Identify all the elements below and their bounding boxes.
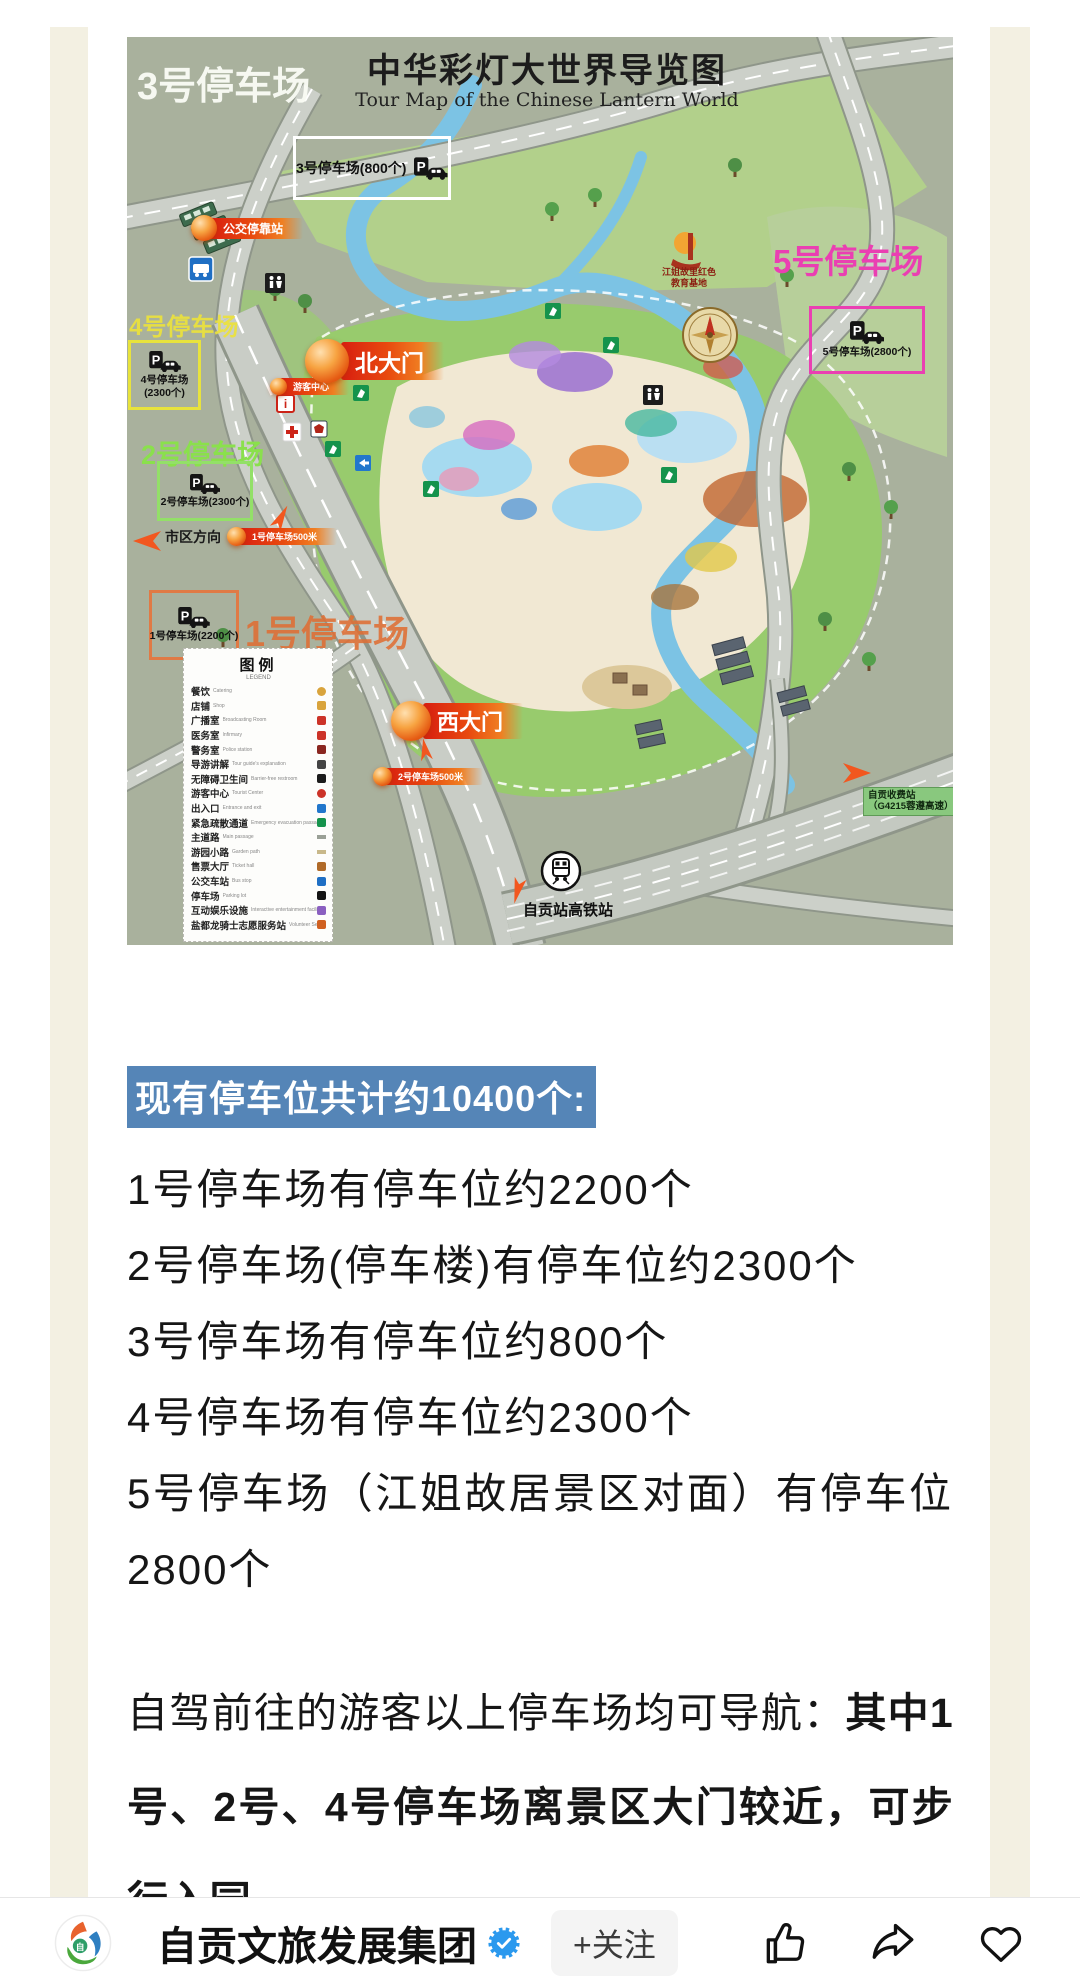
legend-subtitle: LEGEND xyxy=(191,675,326,681)
legend-icon-main-road xyxy=(317,835,326,839)
parking-list: 1号停车场有停车位约2200个 2号停车场(停车楼)有停车位约2300个 3号停… xyxy=(127,1152,953,1608)
legend-title: 图例 xyxy=(191,654,326,675)
legend-row: 导游讲解Tour guide's explanation xyxy=(191,757,326,772)
map-legend: 图例 LEGEND 餐饮Catering 店铺Shop 广播室Broadcast… xyxy=(183,648,333,942)
legend-icon-entertainment xyxy=(317,906,326,915)
legend-row: 游客中心Tourist Center xyxy=(191,786,326,801)
avatar[interactable]: 自 xyxy=(54,1914,112,1972)
legend-row: 主道路Main passage xyxy=(191,830,326,845)
train-station-label: 自贡站高铁站 xyxy=(523,899,613,920)
parking-box-3-label: 3号停车场(800个) xyxy=(296,160,406,176)
legend-icon-entrance xyxy=(317,804,326,813)
marker-p1-distance: 1号停车场500米 xyxy=(227,527,337,546)
train-station-icon xyxy=(542,852,580,890)
legend-row: 无障碍卫生间Barrier-free restroom xyxy=(191,772,326,787)
map-title: 中华彩灯大世界导览图 xyxy=(297,43,797,92)
zone-label-3: 3号停车场 xyxy=(137,55,310,110)
parking-line-2: 2号停车场(停车楼)有停车位约2300个 xyxy=(127,1228,953,1304)
marker-west-gate-label: 西大门 xyxy=(423,703,523,739)
legend-row: 警务室Police station xyxy=(191,742,326,757)
parking-car-icon xyxy=(850,321,884,344)
left-margin-stripe xyxy=(50,27,88,1897)
marker-sphere-icon xyxy=(391,701,431,741)
marker-sphere-icon xyxy=(373,767,392,786)
marker-bus-stop-label: 公交停靠站 xyxy=(209,218,303,239)
parking-car-icon xyxy=(190,474,220,494)
marker-north-gate: 北大门 xyxy=(305,339,444,383)
favorite-heart-icon[interactable] xyxy=(976,1918,1026,1968)
info-icon: i xyxy=(277,395,294,412)
legend-icon-parking xyxy=(317,891,326,900)
share-icon[interactable] xyxy=(868,1918,918,1968)
police-icon xyxy=(311,421,327,437)
zone-label-5: 5号停车场 xyxy=(773,235,923,283)
marker-sphere-icon xyxy=(305,339,349,383)
parking-box-2-label: 2号停车场(2300个) xyxy=(161,496,250,508)
parking-box-4-label: 4号停车场(2300个) xyxy=(141,374,189,398)
legend-icon-shop xyxy=(317,701,326,710)
marker-sphere-icon xyxy=(227,527,246,546)
entrance-sign-icon xyxy=(355,455,371,471)
like-icon[interactable] xyxy=(760,1918,810,1968)
marker-p2-distance: 2号停车场500米 xyxy=(373,767,483,786)
parking-box-2: 2号停车场(2300个) xyxy=(157,461,253,521)
parking-line-1: 1号停车场有停车位约2200个 xyxy=(127,1152,953,1228)
article-heading: 现有停车位共计约10400个: xyxy=(127,1066,596,1128)
legend-row: 出入口Entrance and exit xyxy=(191,801,326,816)
parking-car-icon xyxy=(178,607,210,628)
legend-icon-garden-path xyxy=(317,850,326,854)
legend-icon-broadcast xyxy=(317,716,326,725)
right-margin-stripe xyxy=(990,27,1030,1897)
parking-box-5-label: 5号停车场(2800个) xyxy=(823,346,912,358)
legend-icon-volunteer xyxy=(317,920,326,929)
footer-bar: 自 自贡文旅发展集团 +关注 xyxy=(0,1897,1080,1988)
restroom-icon xyxy=(265,273,285,293)
legend-icon-accessible-restroom xyxy=(317,774,326,783)
zone-label-4: 4号停车场 xyxy=(129,307,238,342)
legend-row: 餐饮Catering xyxy=(191,684,326,699)
account-name[interactable]: 自贡文旅发展集团 xyxy=(157,1914,477,1972)
legend-row: 医务室Infirmary xyxy=(191,728,326,743)
legend-row: 停车场Parking lot xyxy=(191,888,326,903)
parking-car-icon xyxy=(414,155,448,182)
map-subtitle: Tour Map of the Chinese Lantern World xyxy=(297,89,797,111)
article-body: 现有停车位共计约10400个: 1号停车场有停车位约2200个 2号停车场(停车… xyxy=(127,1066,953,1948)
parking-line-4: 4号停车场有停车位约2300个 xyxy=(127,1380,953,1456)
legend-icon-ticket-hall xyxy=(317,862,326,871)
legend-row: 游园小路Garden path xyxy=(191,845,326,860)
marker-p2-distance-label: 2号停车场500米 xyxy=(384,768,483,785)
tour-map-image: i xyxy=(127,37,953,945)
first-aid-icon xyxy=(283,423,301,441)
parking-box-3: 3号停车场(800个) xyxy=(293,136,451,200)
legend-icon-visitor-center xyxy=(317,789,326,798)
verified-badge-icon xyxy=(487,1926,521,1960)
svg-text:i: i xyxy=(284,397,287,411)
legend-icon-bus-station xyxy=(317,877,326,886)
city-direction-label: 市区方向 xyxy=(165,527,221,547)
parking-box-1-label: 1号停车场(2200个) xyxy=(150,630,239,642)
legend-row: 盐都龙骑士志愿服务站Volunteer Service Station xyxy=(191,918,326,933)
legend-icon-catering xyxy=(317,687,326,696)
parking-box-5: 5号停车场(2800个) xyxy=(809,306,925,374)
marker-sphere-icon xyxy=(191,215,217,241)
legend-icon-police xyxy=(317,745,326,754)
parking-car-icon xyxy=(149,351,181,372)
parking-box-4: 4号停车场(2300个) xyxy=(128,340,201,410)
legend-icon-infirmary xyxy=(317,731,326,740)
legend-row: 公交车站Bus stop xyxy=(191,874,326,889)
legend-row: 紧急疏散通道Emergency evacuation passage xyxy=(191,815,326,830)
legend-row: 广播室Broadcasting Room xyxy=(191,713,326,728)
legend-row: 店铺Shop xyxy=(191,699,326,714)
marker-north-gate-label: 北大门 xyxy=(341,342,444,380)
svg-text:自: 自 xyxy=(76,1941,85,1952)
marker-p1-distance-label: 1号停车场500米 xyxy=(238,528,337,545)
legend-icon-evacuation xyxy=(317,818,326,827)
marker-sphere-icon xyxy=(270,378,287,395)
bus-stop-sign-icon xyxy=(189,257,213,281)
restroom-icon xyxy=(643,385,663,405)
toll-station-label: 自贡收费站（G4215蓉遵高速） xyxy=(863,787,953,816)
parking-line-5: 5号停车场（江姐故居景区对面）有停车位2800个 xyxy=(127,1456,953,1608)
page: i xyxy=(0,0,1080,1988)
legend-icon-guide xyxy=(317,760,326,769)
marker-bus-stop: 公交停靠站 xyxy=(191,215,303,241)
follow-button[interactable]: +关注 xyxy=(551,1910,678,1976)
jiangjie-poi-label: 江姐故里红色教育基地 xyxy=(649,267,729,290)
compass-icon xyxy=(683,308,737,362)
legend-row: 互动娱乐设施Interactive entertainment faciliti… xyxy=(191,903,326,918)
parking-line-3: 3号停车场有停车位约800个 xyxy=(127,1304,953,1380)
legend-row: 售票大厅Ticket hall xyxy=(191,859,326,874)
marker-west-gate: 西大门 xyxy=(391,701,523,741)
